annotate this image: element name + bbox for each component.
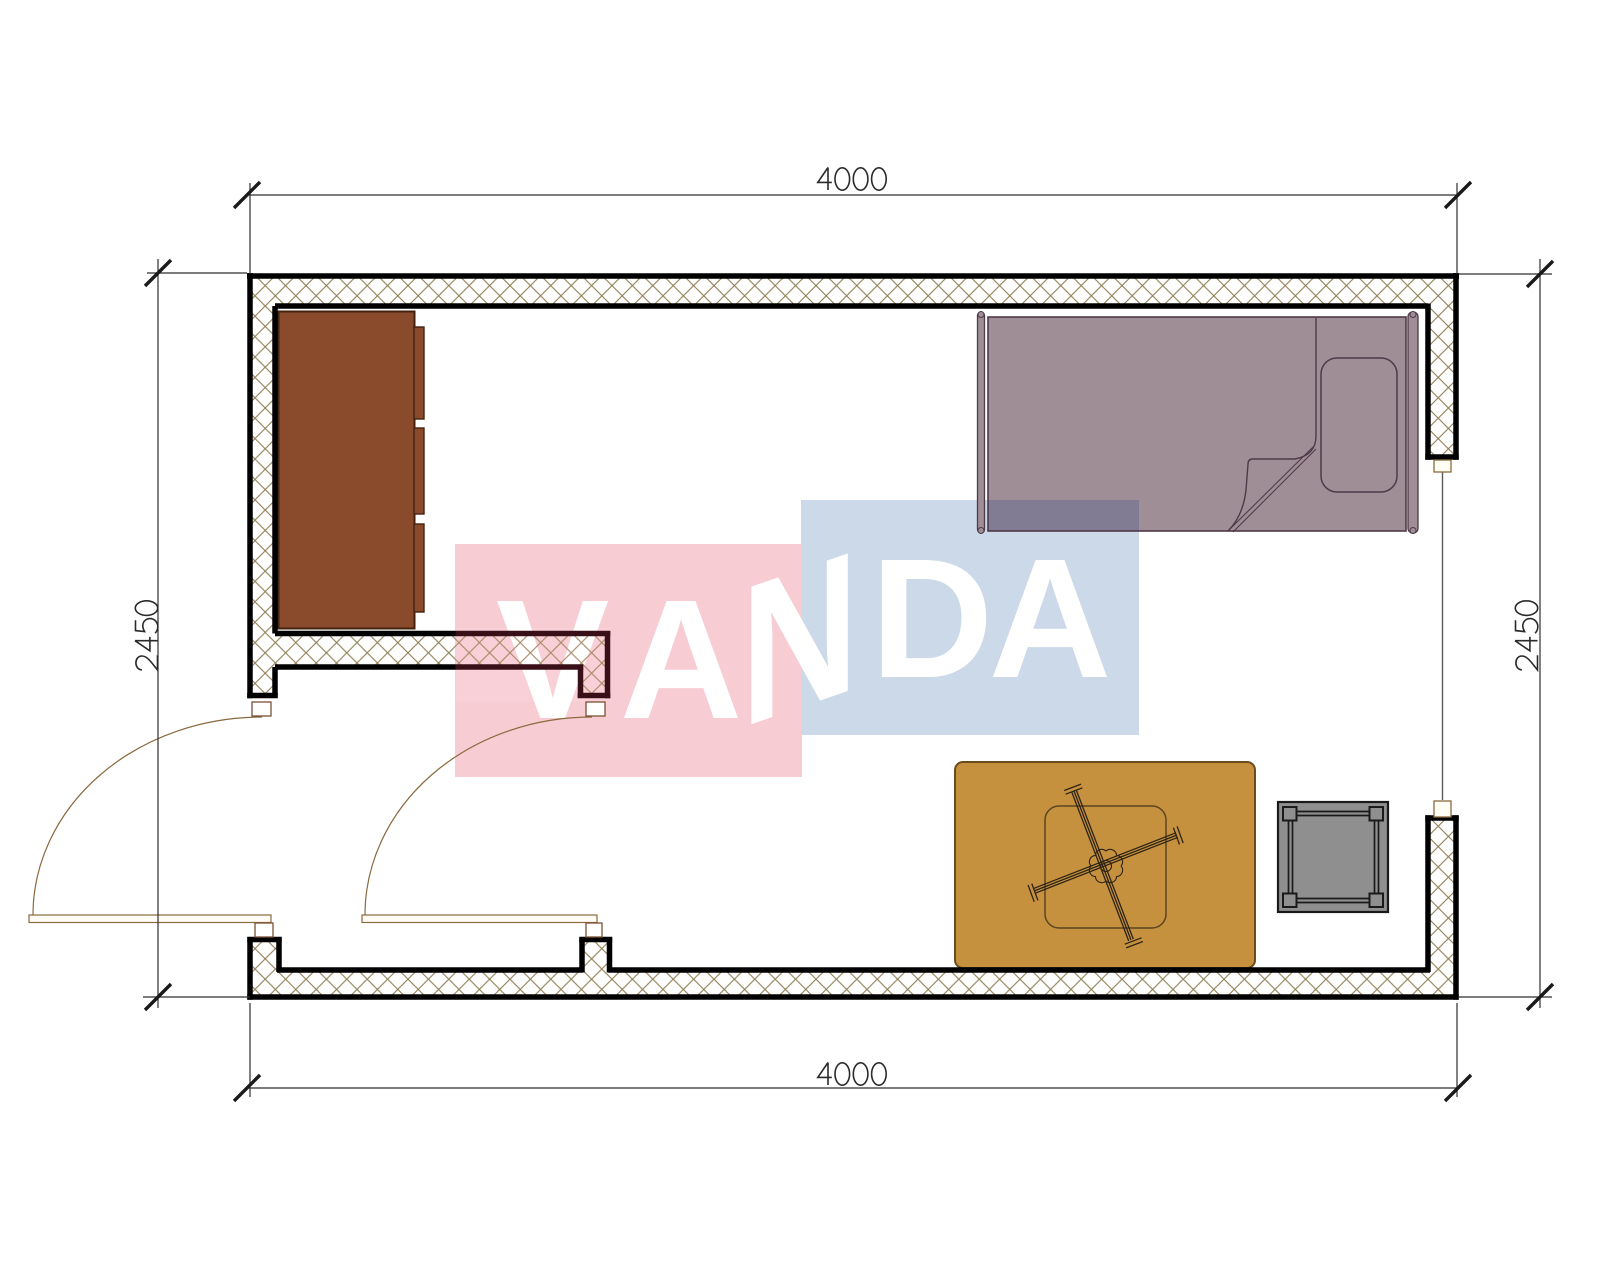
svg-text:A: A — [989, 524, 1112, 714]
svg-text:N: N — [740, 507, 858, 771]
svg-text:D: D — [871, 524, 994, 714]
svg-text:A: A — [620, 565, 743, 755]
